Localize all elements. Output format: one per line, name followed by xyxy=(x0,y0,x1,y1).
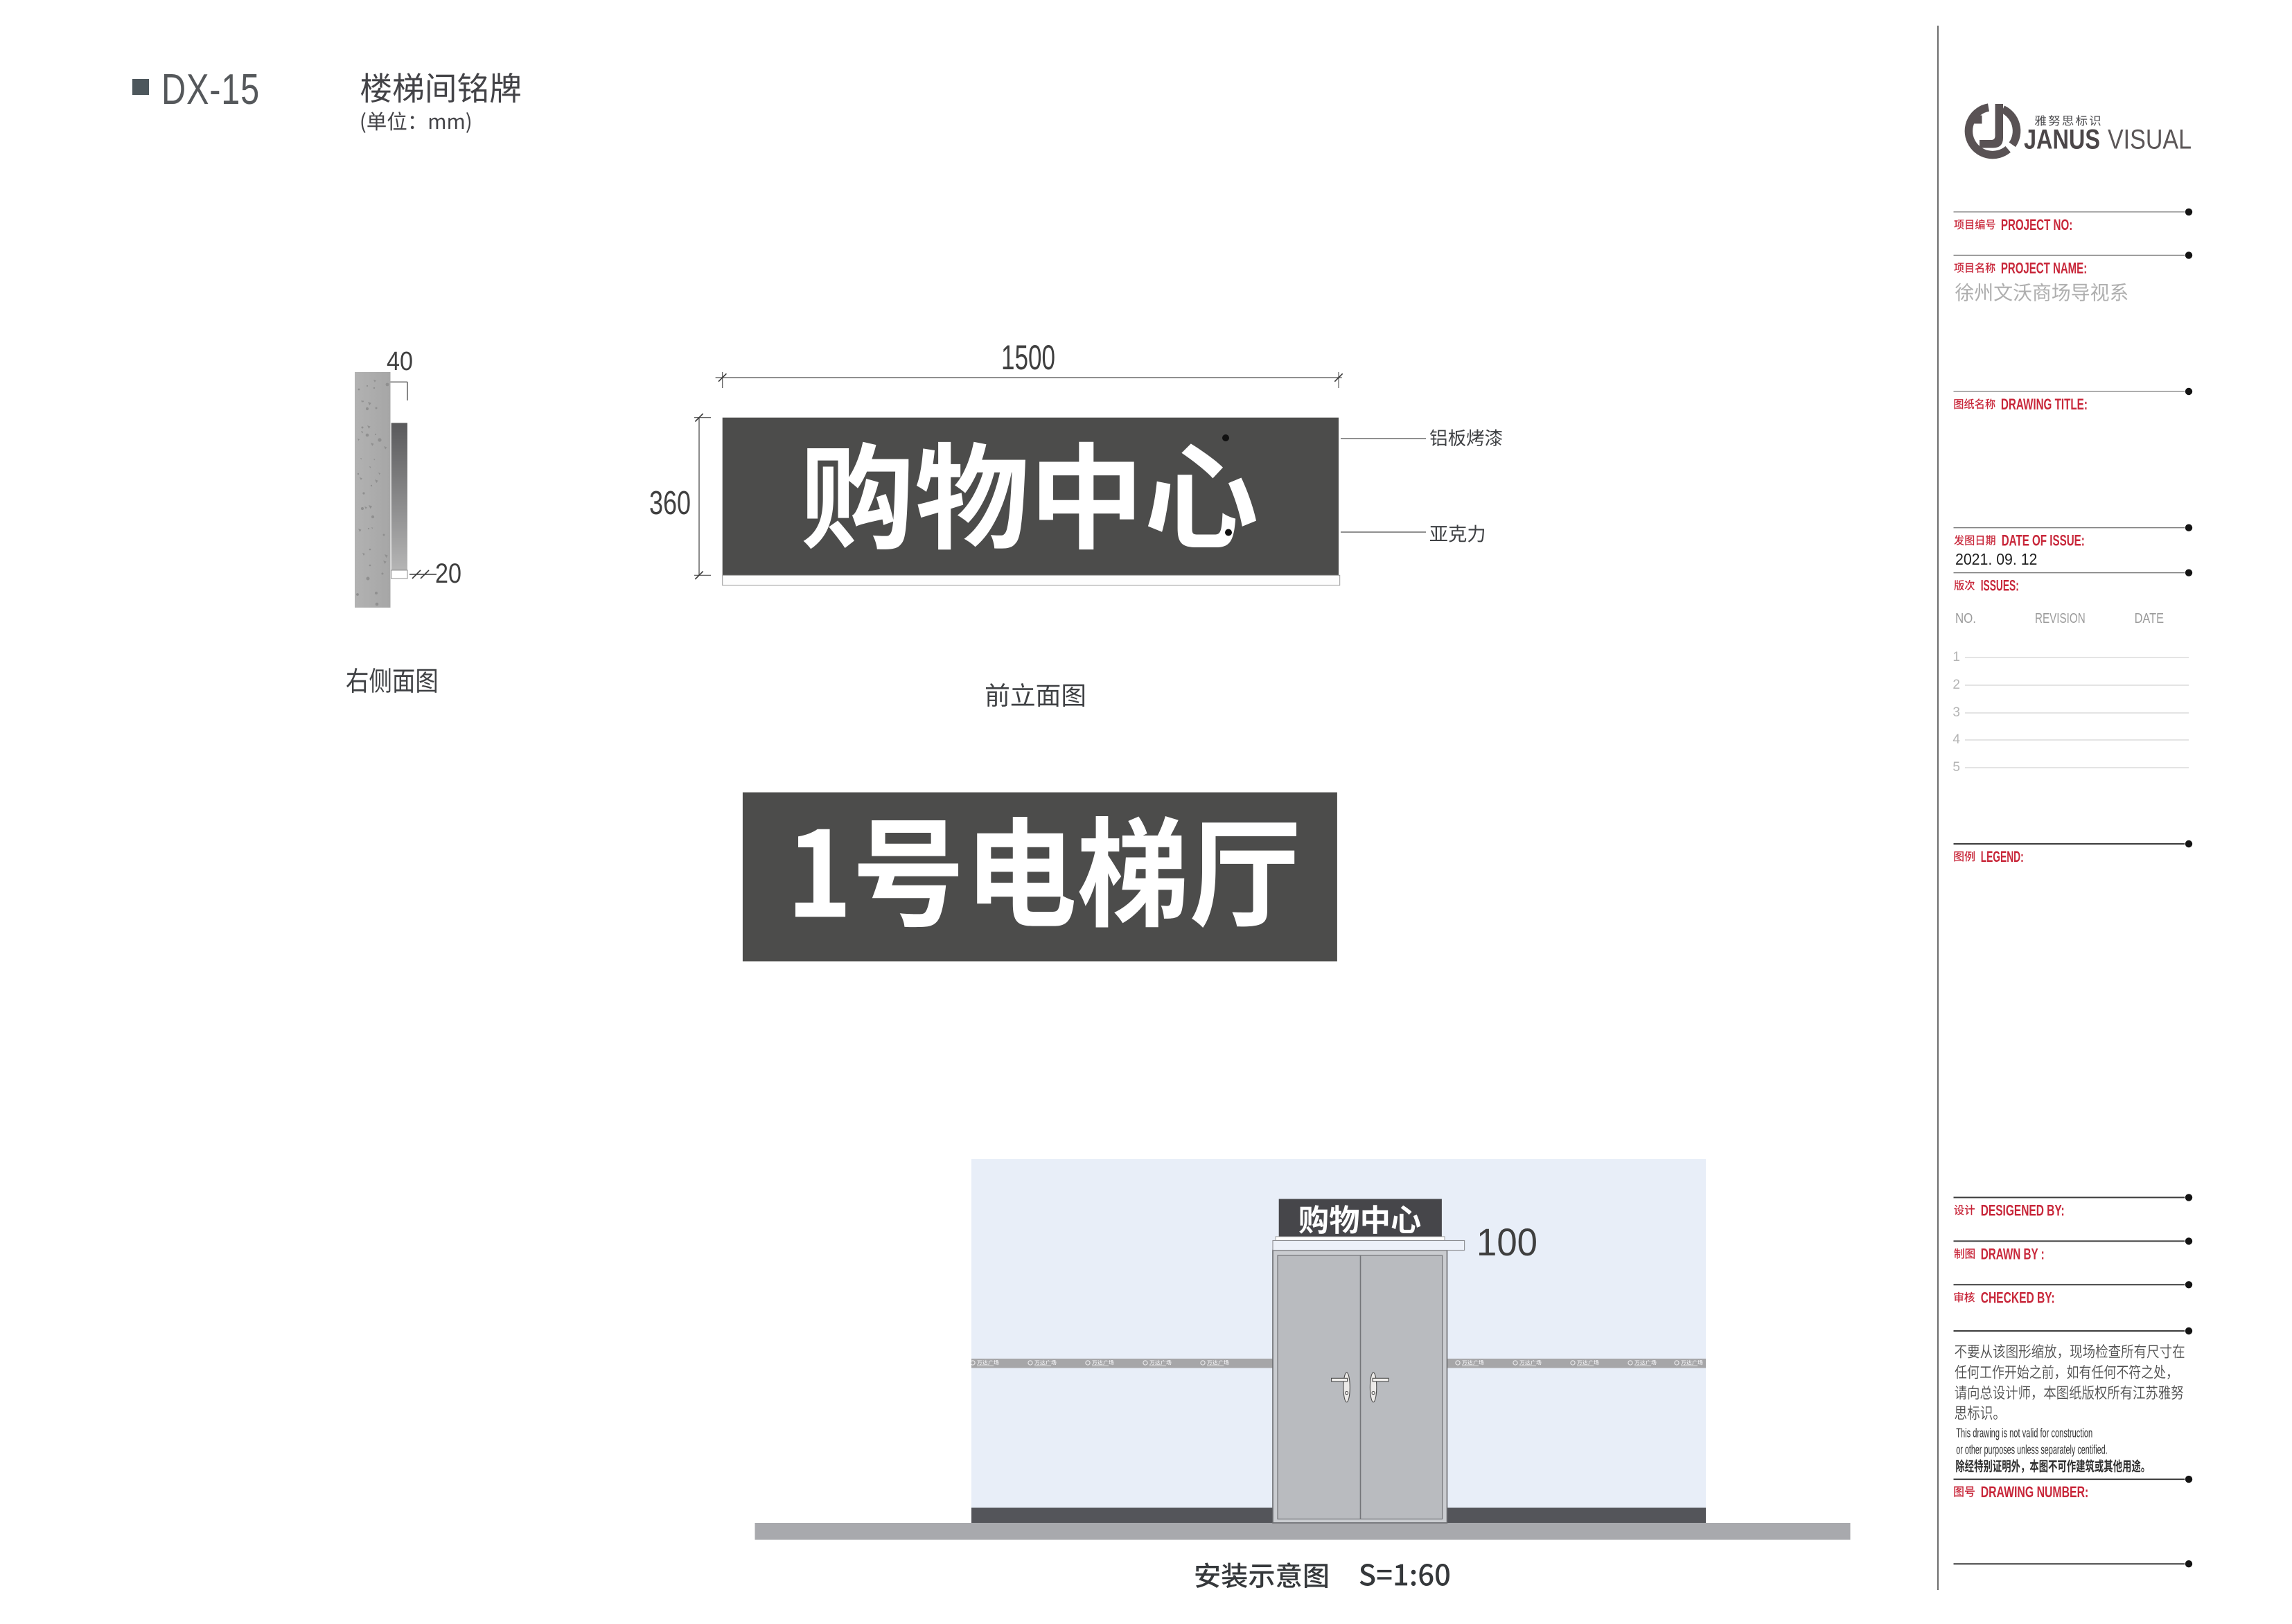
svg-text:1500: 1500 xyxy=(1001,338,1055,377)
svg-text:REVISION: REVISION xyxy=(2035,611,2086,626)
svg-text:360: 360 xyxy=(649,485,691,522)
svg-text:PROJECT NAME:: PROJECT NAME: xyxy=(2001,259,2087,276)
svg-text:DATE: DATE xyxy=(2135,611,2165,626)
svg-text:2021. 09. 12: 2021. 09. 12 xyxy=(1955,550,2037,568)
svg-text:PROJECT NO:: PROJECT NO: xyxy=(2001,216,2072,233)
svg-text:This drawing is not valid for: This drawing is not valid for constructi… xyxy=(1956,1426,2092,1440)
svg-text:100: 100 xyxy=(1476,1220,1537,1264)
svg-text:ISSUES:: ISSUES: xyxy=(1981,577,2019,594)
svg-text:DATE OF ISSUE:: DATE OF ISSUE: xyxy=(2002,532,2085,549)
svg-text:NO.: NO. xyxy=(1955,611,1976,626)
svg-text:DRAWN BY :: DRAWN BY : xyxy=(1981,1245,2045,1262)
svg-text:LEGEND:: LEGEND: xyxy=(1981,848,2024,865)
svg-text:1: 1 xyxy=(1952,650,1960,664)
svg-text:DESIGENED BY:: DESIGENED BY: xyxy=(1981,1201,2065,1219)
svg-text:or other purposes unless separ: or other purposes unless separately cent… xyxy=(1956,1442,2108,1457)
svg-text:CHECKED BY:: CHECKED BY: xyxy=(1981,1289,2055,1306)
svg-text:JANUS: JANUS xyxy=(2024,125,2100,155)
svg-text:DRAWING TITLE:: DRAWING TITLE: xyxy=(2001,396,2088,413)
svg-text:40: 40 xyxy=(387,347,413,376)
svg-text:4: 4 xyxy=(1952,732,1960,747)
svg-text:2: 2 xyxy=(1952,678,1960,692)
svg-text:3: 3 xyxy=(1952,705,1960,720)
svg-text:DX-15: DX-15 xyxy=(161,66,260,114)
svg-text:5: 5 xyxy=(1952,760,1960,775)
svg-text:DRAWING NUMBER:: DRAWING NUMBER: xyxy=(1981,1483,2089,1501)
svg-text:VISUAL: VISUAL xyxy=(2108,125,2192,155)
svg-text:20: 20 xyxy=(435,558,461,589)
